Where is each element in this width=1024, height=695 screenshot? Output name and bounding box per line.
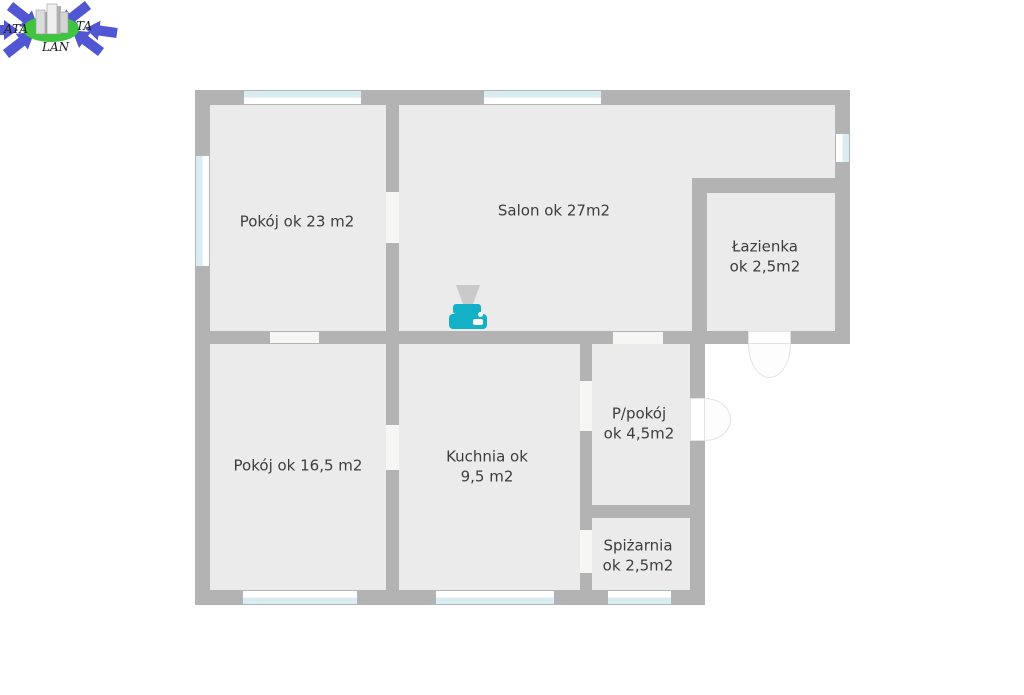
door-kuchnia-spizarnia <box>580 530 592 573</box>
wall-lazienka-top <box>692 178 850 193</box>
logo-text-right: TA <box>76 19 92 33</box>
wall-vertical-left-rooms <box>386 105 399 590</box>
window-pokoj-16-bottom <box>242 590 358 605</box>
wall-exterior-ppokoj-right <box>690 344 705 605</box>
wall-ppokoj-spizarnia <box>580 505 690 518</box>
window-salon-top <box>483 90 602 105</box>
door-lazienka-leaf <box>748 331 791 344</box>
stove-hood-icon <box>456 285 480 304</box>
agency-watermark-logo: ATA TA LAN <box>0 0 118 62</box>
logo-text-bottom: LAN <box>41 40 70 54</box>
door-pokoj23-pokoj16 <box>270 332 319 343</box>
door-kuchnia-ppokoj <box>580 381 592 431</box>
door-ppokoj-entry-leaf <box>690 398 705 441</box>
label-salon: Salon ok 27m2 <box>498 201 610 221</box>
label-spizarnia: Spiżarnia ok 2,5m2 <box>603 537 674 576</box>
label-p-pokoj: P/pokój ok 4,5m2 <box>604 405 675 444</box>
window-pokoj-23-top <box>243 90 362 105</box>
label-kuchnia: Kuchnia ok 9,5 m2 <box>446 448 528 487</box>
door-ppokoj-entry-swing-arc <box>705 398 731 441</box>
wall-exterior-right <box>835 90 850 344</box>
label-lazienka: Łazienka ok 2,5m2 <box>730 238 801 277</box>
buildings-icon <box>36 4 68 34</box>
stove-icon <box>449 285 487 329</box>
window-spizarnia-bottom <box>607 590 672 605</box>
label-pokoj-16: Pokój ok 16,5 m2 <box>234 456 363 476</box>
logo-graphic: ATA TA LAN <box>0 0 118 62</box>
door-salon-ppokoj <box>613 332 663 344</box>
door-pokoj23-salon <box>386 192 399 243</box>
window-salon-right <box>835 133 850 163</box>
window-kuchnia-bottom <box>435 590 555 605</box>
window-pokoj-23-left <box>195 155 210 267</box>
wall-lazienka-left <box>692 193 707 331</box>
door-pokoj16-kuchnia <box>386 425 399 470</box>
label-pokoj-23: Pokój ok 23 m2 <box>240 212 355 232</box>
floorplan-page: Pokój ok 23 m2 Salon ok 27m2 Łazienka ok… <box>0 0 1024 695</box>
logo-text-left: ATA <box>3 22 28 36</box>
door-lazienka-swing-arc <box>748 344 791 378</box>
